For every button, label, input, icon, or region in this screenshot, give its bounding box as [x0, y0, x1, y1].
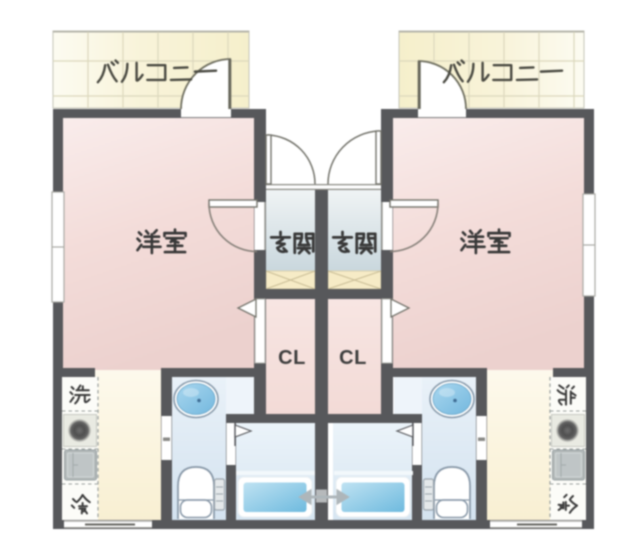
svg-text:CL: CL	[278, 347, 306, 369]
svg-text:CL: CL	[339, 347, 367, 369]
